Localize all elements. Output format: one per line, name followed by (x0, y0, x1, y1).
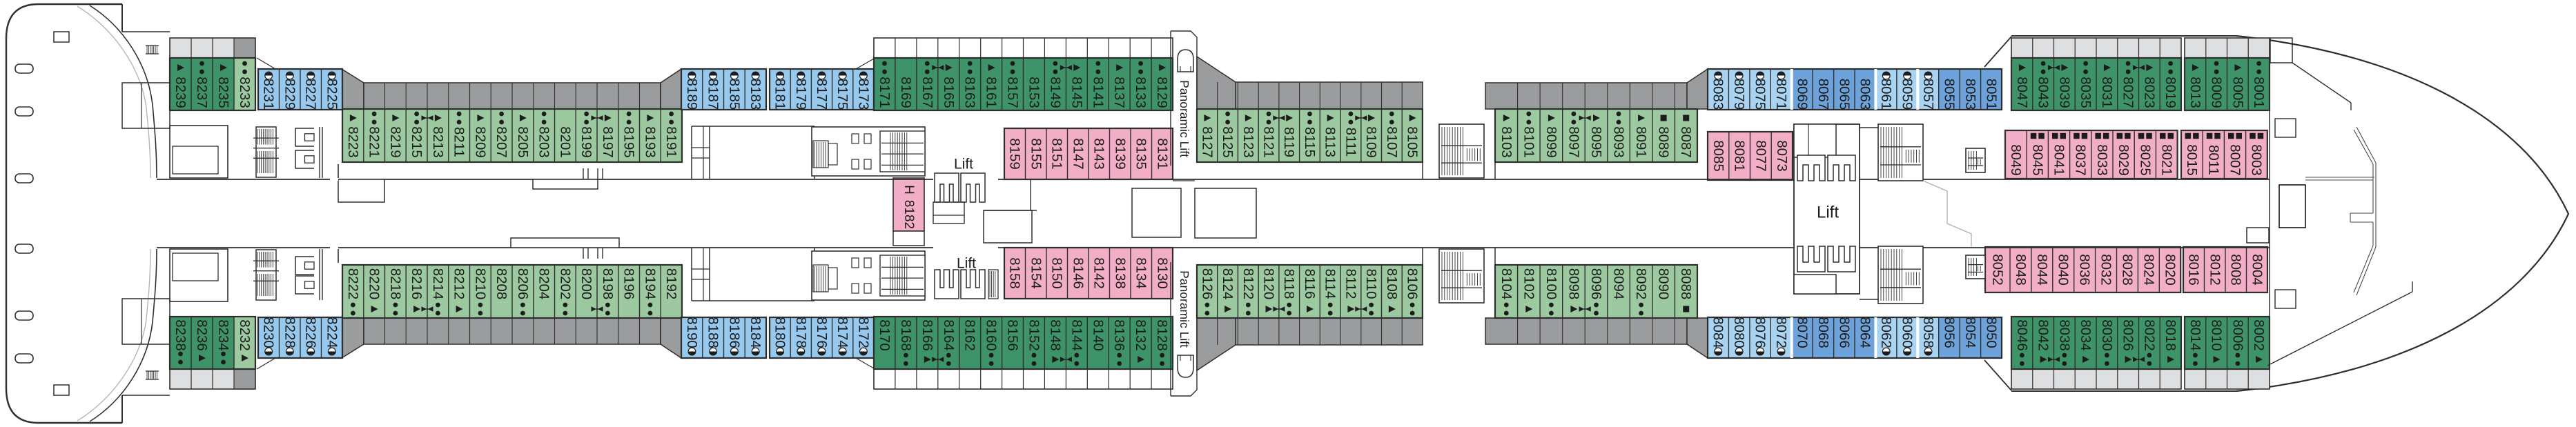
svg-text:8234: 8234 (215, 319, 231, 351)
svg-text:8228: 8228 (282, 317, 297, 348)
svg-text:8227: 8227 (303, 79, 319, 110)
svg-text:8099: 8099 (1543, 126, 1559, 158)
svg-text:8149: 8149 (1047, 77, 1063, 108)
svg-text:8142: 8142 (1091, 257, 1107, 289)
svg-text:8077: 8077 (1753, 140, 1768, 172)
svg-text:8151: 8151 (1049, 138, 1065, 170)
svg-text:8229: 8229 (282, 79, 297, 110)
svg-text:8157: 8157 (1005, 77, 1021, 108)
svg-text:8205: 8205 (515, 126, 531, 158)
svg-text:8049: 8049 (2008, 144, 2024, 176)
svg-text:8183: 8183 (748, 79, 763, 110)
svg-text:8114: 8114 (1323, 268, 1338, 299)
svg-text:8140: 8140 (1090, 319, 1106, 351)
svg-text:8061: 8061 (1878, 79, 1894, 110)
svg-text:8207: 8207 (494, 126, 509, 158)
svg-text:8034: 8034 (2078, 319, 2094, 351)
svg-text:8178: 8178 (793, 317, 809, 348)
svg-text:8054: 8054 (1962, 317, 1978, 348)
svg-text:8011: 8011 (2205, 145, 2221, 175)
svg-text:8199: 8199 (578, 126, 594, 158)
svg-text:8098: 8098 (1565, 268, 1581, 300)
svg-text:8132: 8132 (1133, 319, 1149, 351)
svg-text:8119: 8119 (1281, 127, 1297, 157)
svg-text:8092: 8092 (1633, 268, 1649, 300)
svg-text:8118: 8118 (1281, 268, 1297, 299)
svg-text:8073: 8073 (1774, 140, 1790, 172)
svg-text:8106: 8106 (1405, 268, 1421, 300)
svg-text:8138: 8138 (1112, 257, 1128, 289)
svg-text:8101: 8101 (1521, 126, 1536, 158)
svg-text:8107: 8107 (1384, 126, 1400, 158)
svg-text:8113: 8113 (1323, 127, 1338, 157)
svg-text:8152: 8152 (1026, 319, 1042, 351)
svg-text:8070: 8070 (1794, 317, 1810, 348)
svg-text:8023: 8023 (2141, 77, 2157, 108)
svg-text:8050: 8050 (1983, 317, 1999, 348)
svg-text:8191: 8191 (663, 126, 679, 158)
svg-text:8189: 8189 (684, 79, 700, 110)
svg-text:8006: 8006 (2229, 319, 2245, 351)
svg-text:8168: 8168 (898, 319, 914, 351)
svg-text:8068: 8068 (1815, 317, 1831, 348)
svg-text:8005: 8005 (2229, 77, 2245, 108)
svg-text:H: H (901, 185, 916, 195)
svg-text:8108: 8108 (1384, 268, 1400, 300)
svg-text:8089: 8089 (1656, 126, 1672, 158)
svg-text:8212: 8212 (451, 268, 467, 300)
svg-text:8051: 8051 (1983, 79, 1999, 110)
svg-text:8195: 8195 (621, 126, 637, 158)
svg-text:8202: 8202 (557, 268, 573, 300)
svg-text:8144: 8144 (1069, 319, 1084, 351)
svg-text:8231: 8231 (261, 79, 277, 110)
svg-text:8109: 8109 (1363, 126, 1379, 158)
svg-text:8235: 8235 (215, 77, 231, 108)
svg-text:8232: 8232 (237, 319, 253, 351)
svg-text:8148: 8148 (1047, 319, 1063, 351)
svg-text:8184: 8184 (748, 317, 763, 348)
svg-text:8170: 8170 (877, 319, 892, 351)
svg-text:8163: 8163 (962, 77, 978, 108)
svg-text:8084: 8084 (1710, 317, 1726, 348)
svg-text:8172: 8172 (855, 317, 871, 348)
svg-text:8012: 8012 (2207, 254, 2223, 286)
svg-text:8146: 8146 (1070, 257, 1086, 289)
svg-text:8131: 8131 (1154, 138, 1170, 170)
svg-text:8046: 8046 (2014, 319, 2030, 351)
svg-text:8018: 8018 (2163, 319, 2178, 351)
svg-text:8075: 8075 (1753, 79, 1768, 110)
svg-text:8085: 8085 (1710, 140, 1726, 172)
svg-text:8008: 8008 (2228, 254, 2244, 286)
svg-text:8042: 8042 (2036, 319, 2051, 351)
svg-text:8158: 8158 (1007, 257, 1023, 289)
svg-text:8182: 8182 (901, 200, 916, 229)
svg-text:8087: 8087 (1678, 126, 1694, 158)
svg-text:8112: 8112 (1343, 268, 1358, 299)
svg-text:8045: 8045 (2029, 144, 2045, 176)
svg-text:8053: 8053 (1962, 79, 1978, 110)
svg-text:8111: 8111 (1343, 128, 1358, 157)
svg-text:8147: 8147 (1070, 138, 1086, 170)
svg-text:8214: 8214 (430, 268, 446, 300)
svg-text:8237: 8237 (194, 77, 210, 108)
svg-text:8174: 8174 (835, 317, 850, 348)
svg-text:8156: 8156 (1005, 319, 1021, 351)
svg-text:8091: 8091 (1633, 126, 1649, 158)
svg-text:8029: 8029 (2116, 144, 2131, 176)
svg-text:8185: 8185 (726, 79, 742, 110)
svg-text:8137: 8137 (1111, 77, 1127, 108)
svg-text:8187: 8187 (705, 79, 721, 110)
svg-text:8128: 8128 (1154, 319, 1170, 351)
svg-text:8143: 8143 (1091, 138, 1107, 170)
svg-text:8043: 8043 (2036, 77, 2051, 108)
svg-text:8122: 8122 (1240, 268, 1256, 300)
svg-text:8230: 8230 (261, 317, 277, 348)
svg-text:8016: 8016 (2186, 254, 2202, 286)
svg-text:8025: 8025 (2137, 144, 2153, 176)
svg-text:8220: 8220 (367, 268, 382, 300)
svg-text:8013: 8013 (2187, 77, 2203, 108)
svg-text:8197: 8197 (600, 126, 616, 158)
svg-text:8159: 8159 (1007, 138, 1023, 170)
svg-text:8076: 8076 (1753, 317, 1768, 348)
svg-text:8116: 8116 (1302, 268, 1318, 299)
svg-text:8021: 8021 (2159, 144, 2175, 176)
svg-text:8161: 8161 (984, 77, 999, 108)
svg-text:8179: 8179 (793, 79, 809, 110)
svg-text:8040: 8040 (2056, 254, 2071, 286)
svg-text:8209: 8209 (472, 126, 488, 158)
svg-text:8090: 8090 (1656, 268, 1672, 300)
svg-text:8028: 8028 (2120, 254, 2136, 286)
svg-text:8166: 8166 (919, 319, 935, 351)
svg-text:8123: 8123 (1240, 126, 1256, 158)
svg-text:8100: 8100 (1543, 268, 1559, 300)
svg-text:Lift: Lift (957, 256, 976, 272)
svg-text:8058: 8058 (1920, 317, 1936, 348)
svg-text:8004: 8004 (2249, 254, 2265, 286)
svg-text:8079: 8079 (1731, 79, 1747, 110)
svg-text:Panoramic Lift: Panoramic Lift (1178, 270, 1191, 348)
svg-text:8139: 8139 (1112, 138, 1128, 170)
svg-text:8145: 8145 (1069, 77, 1084, 108)
svg-text:8038: 8038 (2056, 319, 2072, 351)
svg-text:8055: 8055 (1941, 79, 1957, 110)
svg-text:8121: 8121 (1261, 126, 1277, 158)
svg-text:8150: 8150 (1049, 257, 1065, 289)
svg-text:8010: 8010 (2209, 319, 2225, 351)
svg-text:8015: 8015 (2184, 144, 2200, 176)
svg-text:8219: 8219 (387, 126, 403, 158)
svg-text:8141: 8141 (1090, 77, 1106, 108)
svg-text:8194: 8194 (642, 268, 658, 300)
svg-text:8024: 8024 (2140, 254, 2156, 286)
svg-text:8162: 8162 (962, 319, 978, 351)
svg-text:8014: 8014 (2187, 319, 2203, 351)
svg-text:8135: 8135 (1133, 138, 1149, 170)
svg-text:8094: 8094 (1611, 268, 1627, 300)
svg-text:8238: 8238 (173, 319, 188, 351)
svg-text:8136: 8136 (1111, 319, 1127, 351)
svg-text:8039: 8039 (2056, 77, 2072, 108)
svg-text:8233: 8233 (237, 77, 253, 108)
svg-text:8222: 8222 (345, 268, 361, 300)
svg-text:8020: 8020 (2162, 254, 2178, 286)
svg-text:8188: 8188 (705, 317, 721, 348)
svg-text:8160: 8160 (984, 319, 999, 351)
svg-text:8102: 8102 (1521, 268, 1536, 300)
svg-text:8239: 8239 (173, 77, 188, 108)
svg-text:8127: 8127 (1199, 126, 1215, 158)
svg-text:8223: 8223 (345, 126, 361, 158)
svg-text:8095: 8095 (1588, 126, 1604, 158)
svg-text:8180: 8180 (772, 317, 788, 348)
svg-text:8129: 8129 (1154, 77, 1170, 108)
svg-text:8210: 8210 (472, 268, 488, 300)
svg-text:8033: 8033 (2094, 144, 2110, 176)
svg-text:8213: 8213 (430, 126, 446, 158)
svg-text:8030: 8030 (2099, 319, 2115, 351)
svg-text:8196: 8196 (621, 268, 637, 300)
svg-text:8236: 8236 (194, 319, 210, 351)
svg-text:8181: 8181 (772, 79, 788, 110)
svg-text:8155: 8155 (1028, 138, 1044, 170)
svg-text:8208: 8208 (494, 268, 509, 300)
svg-text:8093: 8093 (1611, 126, 1627, 158)
svg-text:8060: 8060 (1900, 317, 1915, 348)
svg-text:Panoramic Lift: Panoramic Lift (1178, 80, 1191, 157)
svg-text:8048: 8048 (2013, 254, 2029, 286)
svg-text:8110: 8110 (1363, 268, 1379, 299)
svg-text:8026: 8026 (2120, 319, 2136, 351)
svg-text:8134: 8134 (1133, 257, 1149, 289)
svg-text:8175: 8175 (835, 79, 850, 110)
svg-text:8126: 8126 (1199, 268, 1215, 300)
svg-text:8167: 8167 (919, 77, 935, 108)
svg-text:8164: 8164 (941, 319, 957, 351)
svg-text:8133: 8133 (1133, 77, 1149, 108)
svg-text:8211: 8211 (451, 127, 467, 157)
svg-text:8059: 8059 (1900, 79, 1915, 110)
svg-text:8081: 8081 (1732, 140, 1748, 172)
svg-text:8120: 8120 (1261, 268, 1277, 300)
svg-text:8130: 8130 (1154, 257, 1170, 289)
svg-text:8066: 8066 (1836, 317, 1852, 348)
svg-text:8177: 8177 (814, 79, 830, 110)
svg-text:8173: 8173 (855, 79, 871, 110)
svg-text:8186: 8186 (726, 317, 742, 348)
svg-text:8002: 8002 (2251, 319, 2267, 351)
svg-text:8193: 8193 (642, 126, 658, 158)
svg-text:8052: 8052 (1990, 254, 2006, 286)
svg-text:8027: 8027 (2120, 77, 2136, 108)
svg-text:8169: 8169 (898, 77, 914, 108)
svg-text:8096: 8096 (1588, 268, 1604, 300)
svg-text:8044: 8044 (2034, 254, 2050, 286)
svg-text:8124: 8124 (1220, 268, 1236, 300)
svg-text:Lift: Lift (954, 157, 973, 172)
svg-text:8036: 8036 (2077, 254, 2093, 286)
svg-text:Lift: Lift (1817, 203, 1839, 222)
svg-text:8176: 8176 (814, 317, 830, 348)
svg-text:8064: 8064 (1857, 317, 1873, 348)
svg-text:8067: 8067 (1815, 79, 1831, 110)
svg-text:8171: 8171 (877, 77, 892, 108)
svg-text:8062: 8062 (1878, 317, 1894, 348)
svg-text:8031: 8031 (2099, 77, 2115, 108)
svg-text:8035: 8035 (2078, 77, 2094, 108)
svg-text:8103: 8103 (1499, 126, 1514, 158)
svg-text:8097: 8097 (1565, 126, 1581, 158)
svg-text:8204: 8204 (536, 268, 552, 300)
svg-text:8154: 8154 (1028, 257, 1044, 289)
svg-text:8072: 8072 (1773, 317, 1789, 348)
svg-text:8224: 8224 (324, 317, 340, 348)
svg-text:8009: 8009 (2209, 77, 2225, 108)
svg-text:8069: 8069 (1794, 79, 1810, 110)
svg-text:8190: 8190 (684, 317, 700, 348)
svg-text:8153: 8153 (1026, 77, 1042, 108)
svg-text:8192: 8192 (663, 268, 679, 300)
svg-text:8071: 8071 (1773, 79, 1789, 110)
svg-text:8226: 8226 (303, 317, 319, 348)
svg-text:8198: 8198 (600, 268, 616, 300)
svg-text:8001: 8001 (2251, 77, 2267, 108)
svg-text:8200: 8200 (578, 268, 594, 300)
svg-text:8221: 8221 (367, 126, 382, 158)
svg-text:8083: 8083 (1710, 79, 1726, 110)
svg-text:8041: 8041 (2051, 144, 2067, 176)
svg-text:8215: 8215 (409, 126, 425, 158)
svg-text:8065: 8065 (1836, 79, 1852, 110)
svg-text:8088: 8088 (1678, 268, 1694, 300)
svg-text:8206: 8206 (515, 268, 531, 300)
svg-text:8104: 8104 (1499, 268, 1514, 300)
svg-text:8165: 8165 (941, 77, 957, 108)
svg-text:8125: 8125 (1220, 126, 1236, 158)
svg-text:8032: 8032 (2098, 254, 2114, 286)
svg-text:8057: 8057 (1920, 79, 1936, 110)
svg-text:8201: 8201 (557, 126, 573, 158)
svg-text:8063: 8063 (1857, 79, 1873, 110)
svg-text:8225: 8225 (324, 79, 340, 110)
svg-text:8216: 8216 (409, 268, 425, 300)
svg-text:8019: 8019 (2163, 77, 2178, 108)
svg-text:8105: 8105 (1405, 126, 1421, 158)
svg-text:8037: 8037 (2073, 144, 2089, 176)
svg-text:8203: 8203 (536, 126, 552, 158)
svg-text:8115: 8115 (1302, 127, 1318, 157)
svg-text:8003: 8003 (2249, 144, 2265, 176)
svg-text:8080: 8080 (1731, 317, 1747, 348)
svg-text:8022: 8022 (2141, 319, 2157, 351)
svg-text:8218: 8218 (387, 268, 403, 300)
svg-text:8047: 8047 (2014, 77, 2030, 108)
svg-text:8007: 8007 (2227, 144, 2243, 176)
svg-text:8056: 8056 (1941, 317, 1957, 348)
